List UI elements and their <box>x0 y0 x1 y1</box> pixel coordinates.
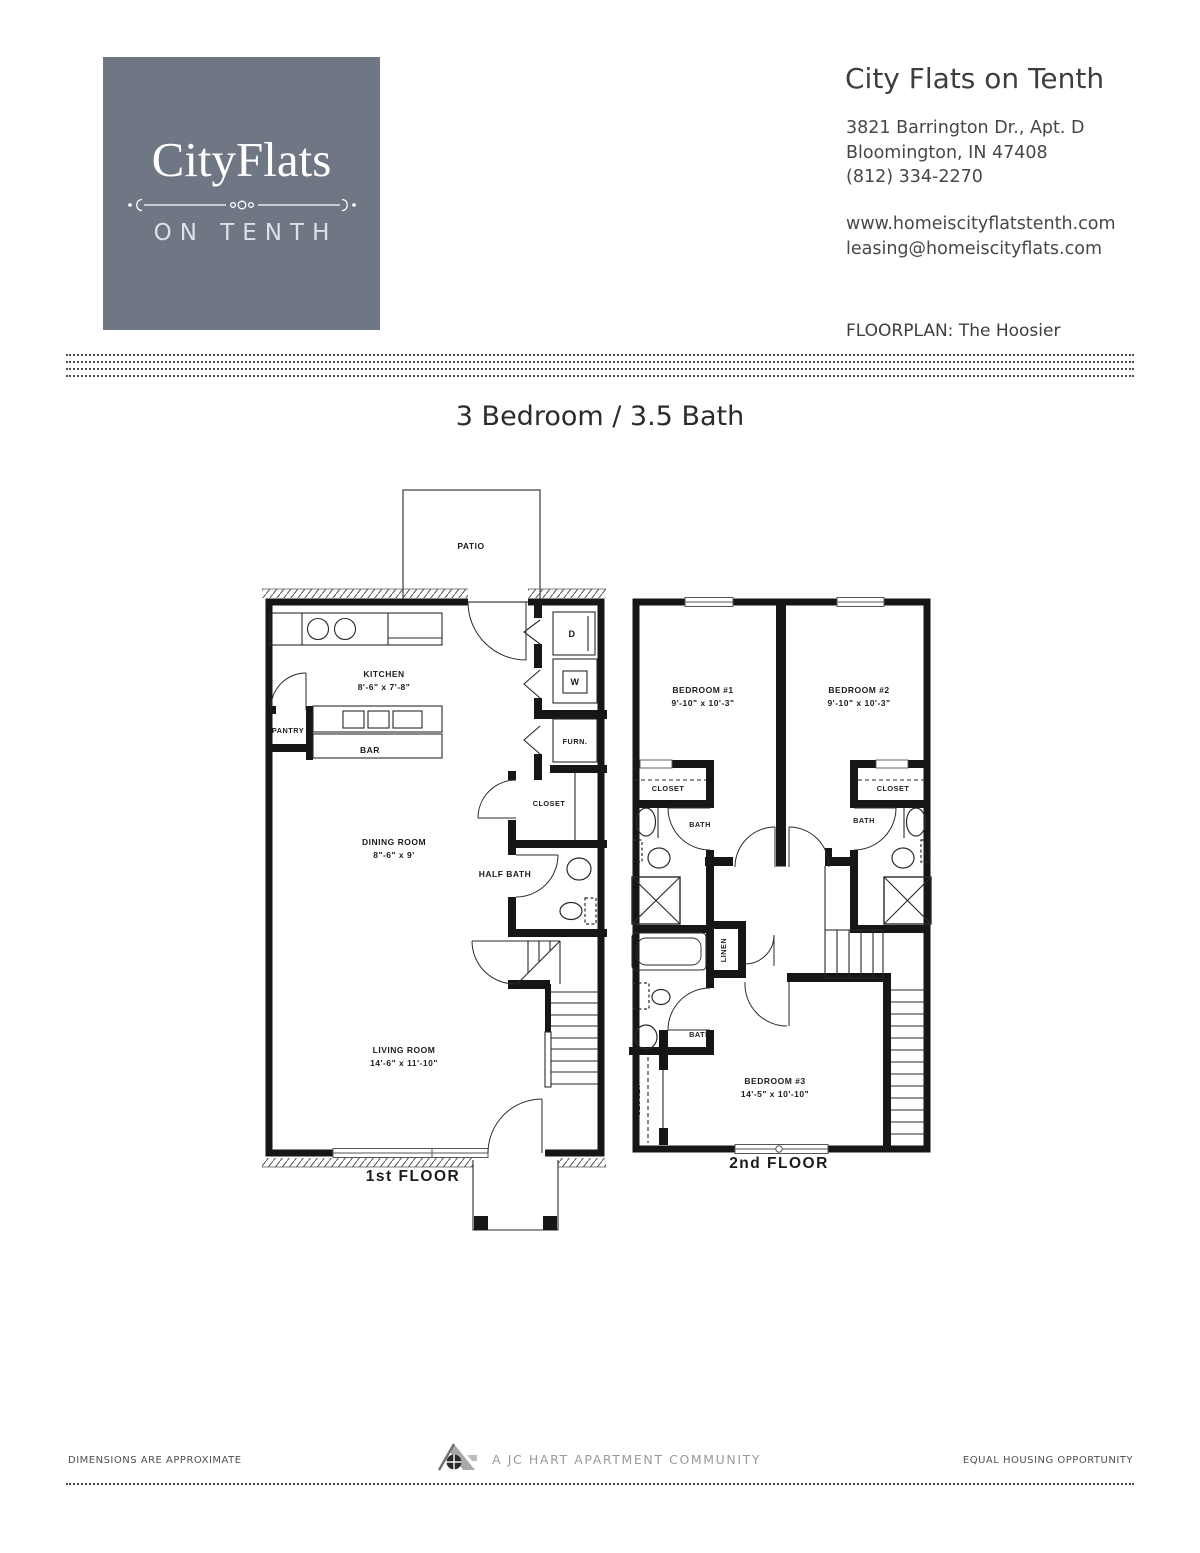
label-pantry: PANTRY <box>272 726 304 735</box>
address-line2: Bloomington, IN 47408 <box>846 141 1085 166</box>
jc-hart-community-text: A JC HART APARTMENT COMMUNITY <box>492 1452 761 1467</box>
label-half-bath: HALF BATH <box>479 869 532 879</box>
first-floor-plan: PATIO KITCHEN 8'-6" x 7'-8" PANTRY BAR D… <box>262 490 607 1230</box>
plan-title: 3 Bedroom / 3.5 Bath <box>0 401 1200 432</box>
flourish-divider-icon <box>126 194 358 216</box>
brand-name: CityFlats <box>103 135 380 184</box>
dotted-divider <box>66 354 1134 382</box>
address-line1: 3821 Barrington Dr., Apt. D <box>846 116 1085 141</box>
label-bedroom1-dims: 9'-10" x 10'-3" <box>671 698 734 708</box>
website-link[interactable]: www.homeiscityflatstenth.com <box>846 212 1116 237</box>
label-closet-br3: CLOSET <box>633 1084 642 1117</box>
equal-housing-text: EQUAL HOUSING OPPORTUNITY <box>963 1455 1133 1466</box>
address-block: 3821 Barrington Dr., Apt. D Bloomington,… <box>846 116 1085 190</box>
label-bedroom1: BEDROOM #1 <box>672 685 733 695</box>
jc-hart-house-icon <box>437 1440 481 1472</box>
label-bath-lower: BATH <box>689 1030 711 1039</box>
label-bath-left: BATH <box>689 820 711 829</box>
label-bedroom2-dims: 9'-10" x 10'-3" <box>827 698 890 708</box>
floorplan-drawing: PATIO KITCHEN 8'-6" x 7'-8" PANTRY BAR D… <box>0 440 1200 1320</box>
label-patio: PATIO <box>457 541 484 551</box>
label-closet-left: CLOSET <box>652 784 685 793</box>
brand-subtitle: ON TENTH <box>103 220 380 246</box>
label-bath-right: BATH <box>853 816 875 825</box>
dimensions-disclaimer: DIMENSIONS ARE APPROXIMATE <box>68 1455 242 1466</box>
floorplan-flyer-page: CityFlats ON TENTH City Flats on Tenth 3… <box>0 0 1200 1553</box>
email-link[interactable]: leasing@homeiscityflats.com <box>846 237 1116 262</box>
label-washer: W <box>571 677 580 687</box>
label-furnace: FURN. <box>563 737 588 746</box>
label-dining: DINING ROOM <box>362 837 426 847</box>
label-kitchen: KITCHEN <box>363 669 404 679</box>
label-second-floor: 2nd FLOOR <box>729 1155 829 1172</box>
label-bedroom2: BEDROOM #2 <box>828 685 889 695</box>
brand-logo: CityFlats ON TENTH <box>103 57 380 330</box>
label-linen: LINEN <box>719 938 728 962</box>
label-first-floor: 1st FLOOR <box>366 1168 460 1185</box>
label-closet-right: CLOSET <box>877 784 910 793</box>
page-title: City Flats on Tenth <box>845 62 1104 95</box>
second-floor-plan: BEDROOM #1 9'-10" x 10'-3" BEDROOM #2 9'… <box>629 598 931 1173</box>
label-bedroom3-dims: 14'-5" x 10'-10" <box>741 1089 809 1099</box>
label-living: LIVING ROOM <box>373 1045 436 1055</box>
label-living-dims: 14'-6" x 11'-10" <box>370 1058 438 1068</box>
floorplan-name: FLOORPLAN: The Hoosier <box>846 321 1060 341</box>
contact-block: www.homeiscityflatstenth.com leasing@hom… <box>846 212 1116 261</box>
label-kitchen-dims: 8'-6" x 7'-8" <box>358 682 411 692</box>
label-closet-1f: CLOSET <box>533 799 566 808</box>
label-bedroom3: BEDROOM #3 <box>744 1076 805 1086</box>
label-bar: BAR <box>360 745 380 755</box>
phone-number: (812) 334-2270 <box>846 165 1085 190</box>
footer-dotted-divider <box>66 1483 1134 1485</box>
label-dryer: D <box>569 629 576 639</box>
label-dining-dims: 8"-6" x 9' <box>373 850 415 860</box>
